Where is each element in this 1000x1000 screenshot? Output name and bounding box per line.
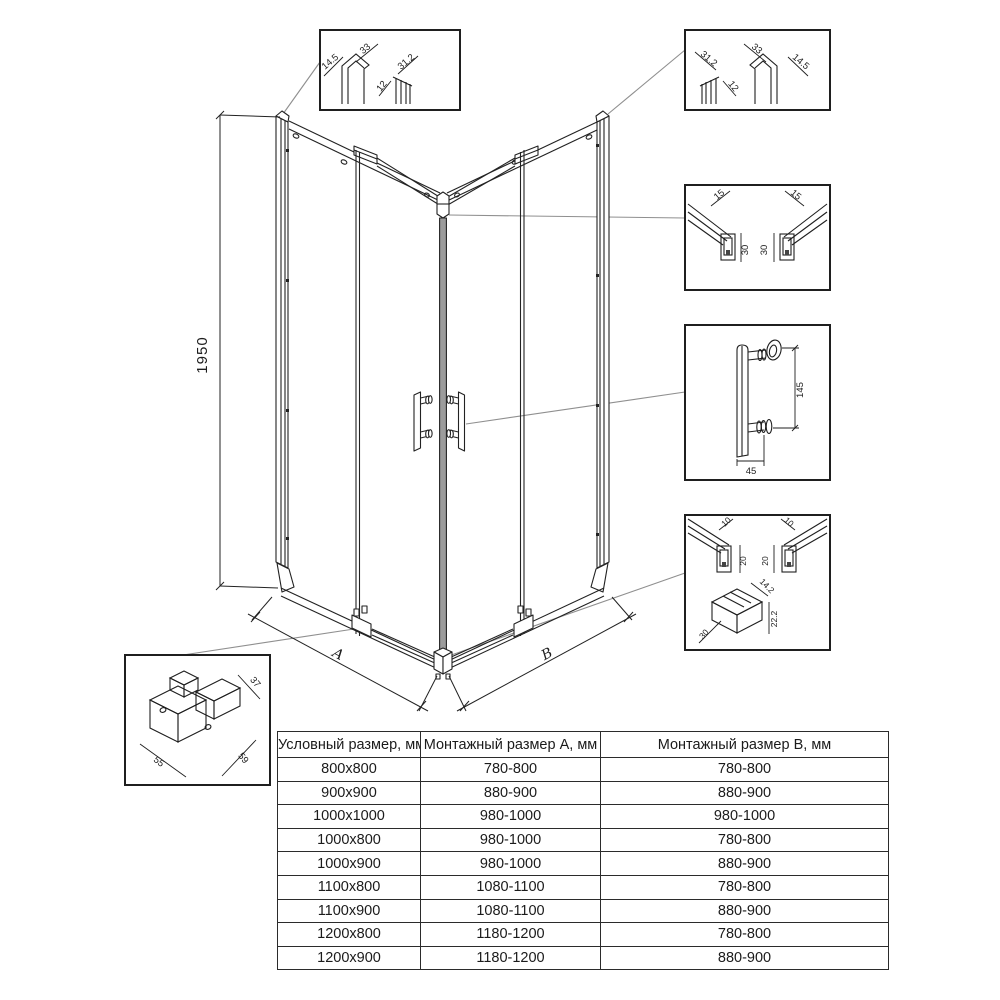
callout-bottom-rail: 10 10 20 20 14.2 22.2 30 xyxy=(685,515,830,650)
cell-size-b: 780-800 xyxy=(601,875,889,899)
table-row: 1100x800 1080-1100 780-800 xyxy=(278,875,889,899)
bottom-corner-block xyxy=(434,648,452,679)
cell-size-a: 980-1000 xyxy=(421,852,601,876)
height-dimension-label: 1950 xyxy=(194,336,211,373)
cell-nominal: 1000x1000 xyxy=(278,805,421,829)
left-roller-bracket xyxy=(352,606,371,637)
cell-nominal: 800x800 xyxy=(278,758,421,782)
cell-size-a: 1180-1200 xyxy=(421,946,601,970)
left-wall-profile xyxy=(276,111,294,592)
table-row: 1000x1000 980-1000 980-1000 xyxy=(278,805,889,829)
dim-b-label: B xyxy=(538,645,555,664)
table-row: 1000x900 980-1000 880-900 xyxy=(278,852,889,876)
main-enclosure-view xyxy=(216,111,636,711)
cell-size-b: 880-900 xyxy=(601,852,889,876)
table-row: 800x800 780-800 780-800 xyxy=(278,758,889,782)
cell-nominal: 1100x900 xyxy=(278,899,421,923)
cell-size-a: 980-1000 xyxy=(421,805,601,829)
handle-dim-145: 145 xyxy=(795,382,806,398)
cell-size-a: 1180-1200 xyxy=(421,923,601,947)
cell-nominal: 1200x800 xyxy=(278,923,421,947)
cell-nominal: 1000x900 xyxy=(278,852,421,876)
table-row: 1100x900 1080-1100 880-900 xyxy=(278,899,889,923)
cell-size-b: 880-900 xyxy=(601,946,889,970)
cell-size-a: 1080-1100 xyxy=(421,899,601,923)
size-table-header-row: Условный размер, мм Монтажный размер А, … xyxy=(278,732,889,758)
left-door-handle xyxy=(414,392,432,451)
cell-size-a: 880-900 xyxy=(421,781,601,805)
cell-size-b: 880-900 xyxy=(601,781,889,805)
callout-top-left-profile: 14.5 33 12 31.2 xyxy=(320,30,460,110)
callout-corner-connector: 37 55 59 xyxy=(125,655,270,785)
shower-enclosure-technical-drawing: 1950 A B 14.5 33 12 31.2 xyxy=(0,0,1000,1000)
size-table: Условный размер, мм Монтажный размер А, … xyxy=(277,731,889,970)
right-roller-bracket xyxy=(514,606,533,637)
rail-holes xyxy=(292,133,592,198)
right-door-handle xyxy=(447,392,465,451)
callout-top-right-profile: 31.2 12 33 14.5 xyxy=(685,30,830,110)
table-row: 900x900 880-900 880-900 xyxy=(278,781,889,805)
cell-nominal: 1200x900 xyxy=(278,946,421,970)
cell-size-a: 980-1000 xyxy=(421,828,601,852)
header-mounting-size-a: Монтажный размер А, мм xyxy=(421,732,601,758)
corner-post xyxy=(437,192,449,650)
dim-a-label: A xyxy=(328,644,346,664)
cell-nominal: 900x900 xyxy=(278,781,421,805)
cell-size-b: 980-1000 xyxy=(601,805,889,829)
cell-size-b: 780-800 xyxy=(601,923,889,947)
leader-lines xyxy=(183,50,685,659)
cell-size-a: 780-800 xyxy=(421,758,601,782)
height-dimension xyxy=(216,111,280,590)
cell-size-a: 1080-1100 xyxy=(421,875,601,899)
header-nominal-size: Условный размер, мм xyxy=(278,732,421,758)
corner-dim-22-2: 22.2 xyxy=(769,610,779,627)
table-row: 1200x900 1180-1200 880-900 xyxy=(278,946,889,970)
cell-size-b: 780-800 xyxy=(601,758,889,782)
callout-handle: 145 45 xyxy=(685,325,830,480)
bottom-dim-20-left: 20 xyxy=(738,556,748,566)
table-row: 1000x800 980-1000 780-800 xyxy=(278,828,889,852)
callout-top-rail: 15 15 30 30 xyxy=(685,185,830,290)
bottom-dim-20-right: 20 xyxy=(760,556,770,566)
cell-size-b: 880-900 xyxy=(601,899,889,923)
right-wall-profile xyxy=(591,111,609,592)
cell-nominal: 1000x800 xyxy=(278,828,421,852)
handle-dim-45: 45 xyxy=(746,466,757,477)
rail-dim-30-left: 30 xyxy=(740,245,751,256)
cell-size-b: 780-800 xyxy=(601,828,889,852)
table-row: 1200x800 1180-1200 780-800 xyxy=(278,923,889,947)
rail-dim-30-right: 30 xyxy=(759,245,770,256)
cell-nominal: 1100x800 xyxy=(278,875,421,899)
header-mounting-size-b: Монтажный размер В, мм xyxy=(601,732,889,758)
